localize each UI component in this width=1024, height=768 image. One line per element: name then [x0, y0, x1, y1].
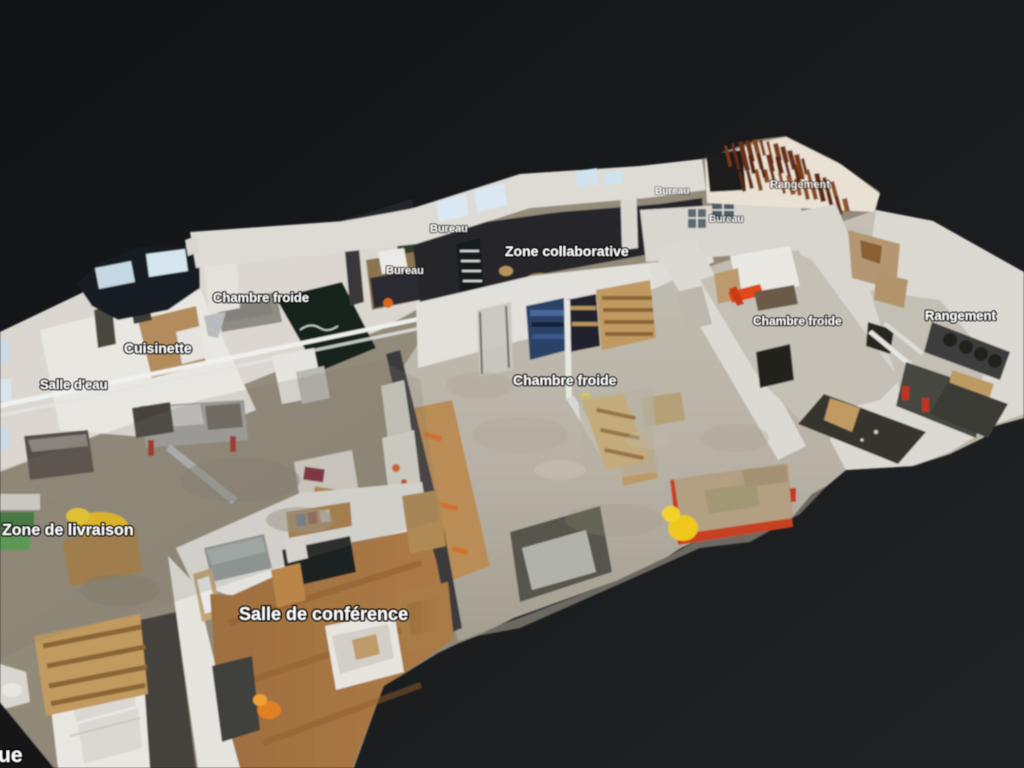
svg-text:Rangement: Rangement — [770, 179, 830, 191]
svg-text:Chambre froide: Chambre froide — [753, 314, 842, 328]
svg-text:ue: ue — [0, 744, 23, 767]
svg-text:Zone collaborative: Zone collaborative — [505, 243, 629, 259]
svg-text:Zone de livraison: Zone de livraison — [2, 522, 134, 539]
svg-text:Chambre froide: Chambre froide — [213, 290, 309, 305]
svg-text:Salle d'eau: Salle d'eau — [40, 377, 107, 392]
svg-text:Bureau: Bureau — [386, 265, 424, 277]
svg-text:Cuisinette: Cuisinette — [124, 340, 192, 356]
svg-text:Bureau: Bureau — [709, 214, 743, 225]
svg-text:Chambre froide: Chambre froide — [513, 372, 617, 388]
svg-text:Rangement: Rangement — [925, 308, 996, 323]
svg-text:Bureau: Bureau — [430, 223, 468, 235]
svg-text:Salle de conférence: Salle de conférence — [239, 604, 408, 624]
svg-text:Bureau: Bureau — [655, 186, 689, 197]
